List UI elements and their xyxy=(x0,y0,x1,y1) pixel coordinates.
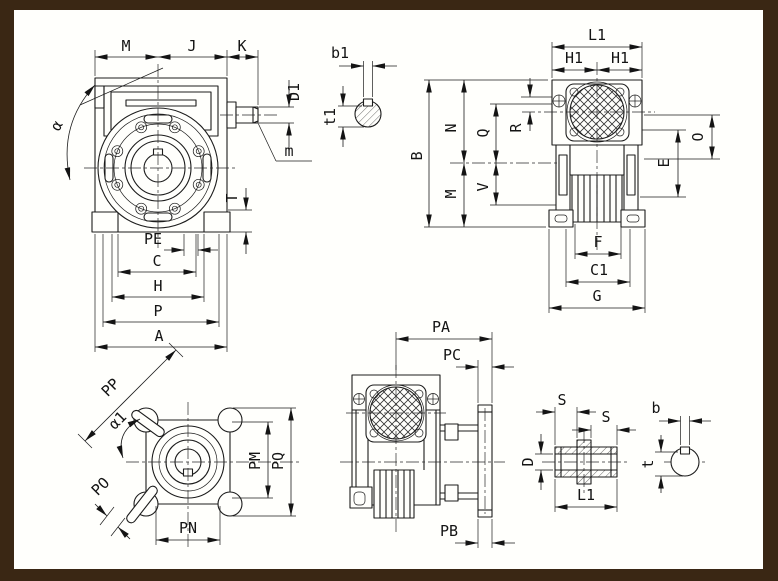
dim-label-k: K xyxy=(237,37,246,55)
dim-label-c1: C1 xyxy=(590,261,608,279)
side-view: L1 H1 H1 B N M Q V R xyxy=(408,26,720,313)
square-output-flange-view: PP α1 PO PM PQ PN xyxy=(78,343,300,548)
hollow-output-shaft-section: S S D L1 xyxy=(519,391,636,512)
dim-label-pe: PE xyxy=(144,230,162,248)
dim-label-l1-hub: L1 xyxy=(577,486,595,504)
dim-label-alpha: α xyxy=(47,117,67,133)
dim-label-g: G xyxy=(592,287,601,305)
dim-label-pm: PM xyxy=(246,452,264,470)
gearbox-dimensional-drawing: α M J K D1 m T xyxy=(0,0,778,581)
dim-label-q: Q xyxy=(474,128,492,137)
dim-label-b-height: B xyxy=(408,151,426,160)
dim-label-pb: PB xyxy=(440,522,458,540)
output-key-detail: b t xyxy=(639,399,711,493)
input-shaft-key-detail: b1 t1 xyxy=(321,44,397,147)
dim-label-s-right: S xyxy=(601,408,610,426)
dim-label-m-side: M xyxy=(442,189,460,198)
dim-label-v: V xyxy=(474,182,492,191)
dim-label-t1: t1 xyxy=(321,108,339,126)
dim-label-c: C xyxy=(152,252,161,270)
dim-label-d1: D1 xyxy=(285,83,303,101)
dim-label-h1-left: H1 xyxy=(565,49,583,67)
dim-label-pa: PA xyxy=(432,318,450,336)
dim-label-j: J xyxy=(187,37,196,55)
dim-label-b: b xyxy=(651,399,660,417)
front-view: α M J K D1 m T xyxy=(47,37,312,352)
side-view-with-output-flange: PA PC PB xyxy=(340,318,515,548)
dim-label-p: P xyxy=(153,302,162,320)
dim-label-r: R xyxy=(507,123,525,133)
dim-label-b1: b1 xyxy=(331,44,349,62)
dim-label-pn: PN xyxy=(179,519,197,537)
drawing-canvas: α M J K D1 m T xyxy=(0,0,778,581)
dim-label-h: H xyxy=(153,277,162,295)
dim-label-m-width: M xyxy=(121,37,130,55)
dim-label-t-key: t xyxy=(639,459,657,468)
dim-label-pc: PC xyxy=(443,346,461,364)
dim-label-s-left: S xyxy=(557,391,566,409)
dim-label-l1-top: L1 xyxy=(588,26,606,44)
dim-label-e: E xyxy=(655,158,673,167)
dim-label-n: N xyxy=(442,123,460,132)
dim-label-f: F xyxy=(593,233,602,251)
dim-label-a: A xyxy=(154,327,163,345)
dim-label-d-bore: D xyxy=(519,457,537,466)
dim-label-pq: PQ xyxy=(269,452,287,470)
dim-label-pp: PP xyxy=(98,375,124,401)
dim-label-module-m: m xyxy=(284,142,293,160)
dim-label-o: O xyxy=(689,132,707,141)
dim-label-po: PO xyxy=(88,474,114,500)
dim-label-h1-right: H1 xyxy=(611,49,629,67)
dim-label-t-foot: T xyxy=(223,193,241,202)
